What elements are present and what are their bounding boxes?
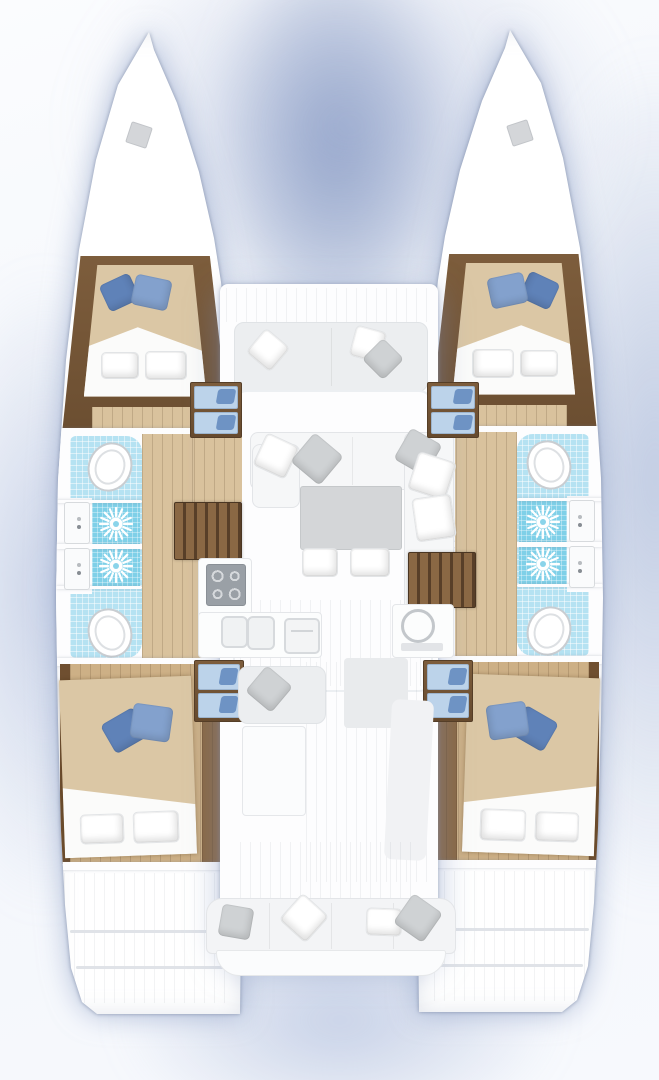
shower-drain-icon — [523, 544, 563, 584]
bow-hatch-icon — [506, 119, 534, 147]
oven-icon — [284, 618, 320, 654]
transom-step — [76, 966, 224, 969]
saloon-stool — [302, 548, 338, 577]
stove-icon — [206, 564, 246, 606]
white-pillow — [480, 808, 527, 842]
vanity-sink-icon — [64, 548, 90, 590]
drawer-icon — [194, 386, 238, 409]
nav-table — [242, 726, 306, 816]
drawer-icon — [431, 386, 475, 409]
fore-berth — [84, 265, 207, 397]
drawer-icon — [431, 412, 475, 435]
saloon-table — [300, 486, 402, 550]
shower-drain-icon — [523, 502, 563, 542]
galley-sink-icon — [247, 616, 275, 650]
washer-drum-icon — [401, 609, 435, 643]
bulkhead — [56, 862, 236, 870]
cockpit-deck — [240, 842, 420, 900]
fore-berth — [453, 263, 576, 395]
bulkhead — [423, 860, 603, 868]
white-pillow — [79, 813, 124, 845]
vent-grille — [401, 643, 443, 651]
vanity-sink-icon — [64, 502, 90, 544]
drawer-icon — [427, 664, 469, 690]
white-pillow — [132, 810, 179, 844]
bench-seat-front — [216, 950, 446, 976]
hull-corridor-floor — [455, 432, 517, 662]
companionway-stairs — [174, 502, 242, 560]
white-pillow — [520, 350, 558, 377]
shower-drain-icon — [96, 504, 136, 544]
heads-compartment — [431, 432, 603, 662]
nightstand-drawers — [194, 660, 244, 722]
nightstand-drawers — [427, 382, 479, 438]
white-pillow — [101, 352, 139, 379]
companionway-stairs — [408, 552, 476, 608]
galley-entry-floor — [194, 430, 242, 502]
drawer-icon — [194, 412, 238, 435]
catamaran-floorplan — [0, 0, 659, 1080]
nav-cabinet — [392, 604, 454, 658]
shower-drain-icon — [96, 546, 136, 586]
blue-pillow — [130, 273, 173, 311]
gray-pillow — [217, 903, 254, 940]
helm-area — [384, 699, 434, 861]
transom-step — [435, 964, 583, 967]
saloon-stool — [350, 548, 390, 577]
blue-pillow — [130, 703, 174, 743]
vanity-sink-icon — [569, 546, 595, 588]
white-pillow — [145, 351, 187, 380]
drawer-icon — [198, 693, 240, 719]
bow-hatch-icon — [125, 121, 153, 149]
drawer-icon — [198, 664, 240, 690]
foredeck — [226, 288, 432, 322]
galley-sink-icon — [221, 616, 248, 648]
white-pillow — [411, 493, 457, 542]
aft-berth — [462, 674, 600, 856]
vanity-sink-icon — [569, 500, 595, 542]
white-pillow — [535, 811, 580, 843]
white-pillow — [472, 349, 514, 378]
aft-berth — [59, 676, 197, 858]
blue-pillow — [485, 701, 529, 741]
blue-pillow — [486, 271, 529, 309]
nightstand-drawers — [190, 382, 242, 438]
